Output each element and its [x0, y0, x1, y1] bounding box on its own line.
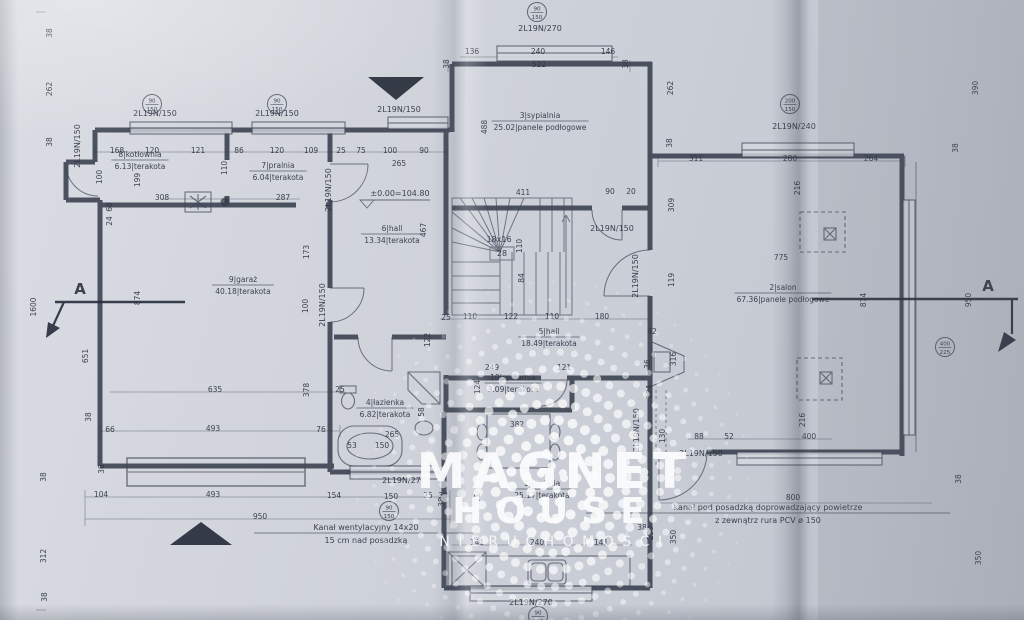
dimension: 100: [301, 299, 310, 314]
annotation: 15 cm nad posadzką: [325, 536, 408, 545]
dimension: 874: [133, 291, 142, 306]
window-door-label: 2L19N/270: [509, 598, 553, 607]
bubble-top-value: 90: [385, 506, 393, 512]
bubble-bottom-value: 150: [384, 514, 395, 520]
dimension: 287: [276, 193, 291, 202]
triangle-marker-bottom: [170, 522, 232, 545]
dimension: 100: [95, 170, 104, 185]
bubble-top-value: 400: [940, 342, 951, 348]
room-label: 2|salon: [769, 283, 796, 292]
dimension: 199: [133, 173, 142, 188]
window-door-label: 2L19N/150: [318, 283, 327, 327]
bubble-top-value: 200: [785, 99, 796, 105]
room-area-label: 40.18|terakota: [215, 287, 270, 296]
dimension: 90: [419, 146, 429, 155]
dimension: 350: [974, 551, 983, 566]
bubble-top-value: 90: [534, 611, 542, 617]
fixtures: [127, 192, 845, 588]
room-label: 4|łazienka: [366, 398, 404, 407]
blueprint-photo: 1681201218612010925751009026513624014652…: [0, 0, 1024, 620]
dimension: 38: [951, 143, 960, 153]
dimension: 316: [669, 352, 678, 367]
dimension: 265: [392, 159, 407, 168]
dimension: 53: [347, 441, 357, 450]
dimension: 38: [45, 137, 54, 147]
room-label: 7|pralnia: [261, 161, 294, 170]
dimension: 90: [605, 187, 615, 196]
dimension: 122: [423, 333, 432, 348]
window-door-label: 2L19N/150: [631, 254, 640, 298]
dimension: 240: [531, 47, 546, 56]
dimension: 635: [208, 385, 223, 394]
room-area-label: 6.13|terakota: [115, 162, 166, 171]
dimension: 488: [480, 120, 489, 135]
dimension: 262: [45, 82, 54, 97]
room-area-label: 18.49|terakota: [521, 339, 576, 348]
dimension: 84: [517, 273, 526, 283]
bubble-top-value: 90: [148, 99, 156, 105]
room-label: 9|garaż: [229, 275, 257, 284]
dimension: 76: [316, 425, 326, 434]
dimension: 874: [859, 293, 868, 308]
bubble-top-value: 90: [273, 99, 281, 105]
bubble-bottom-value: 150: [147, 107, 158, 113]
dimension: 38: [621, 59, 630, 69]
dimension: 400: [802, 432, 817, 441]
dimension: 75: [356, 146, 366, 155]
room-area-label: 67.36|panele podłogowe: [737, 295, 830, 304]
dimension: 950: [964, 293, 973, 308]
dimension: 38: [442, 59, 451, 69]
dimension: 390: [971, 81, 980, 96]
dimension: 38: [39, 472, 48, 482]
room-area-label: 6.04|terakota: [253, 173, 304, 182]
dimension: 124: [473, 380, 482, 395]
shower: [408, 372, 440, 404]
dimension: 280: [783, 154, 798, 163]
room-area-label: 13.34|terakota: [364, 236, 419, 245]
window-door-label: 2L19N/270: [382, 476, 426, 485]
dimension: 800: [786, 493, 801, 502]
dimension: 25: [441, 313, 451, 322]
dimension: 86: [234, 146, 244, 155]
dimension: 121: [191, 146, 206, 155]
dimension: 109: [304, 146, 319, 155]
chimney: [221, 198, 230, 207]
bubble-bottom-value: 225: [940, 350, 951, 356]
dimension: 154: [327, 491, 342, 500]
level-marker: [360, 200, 430, 208]
stair-tread-label: 28: [497, 249, 507, 258]
triangle-marker-top: [368, 77, 424, 100]
dimension: 308: [155, 193, 170, 202]
dimension: 100: [383, 146, 398, 155]
dimension: 522: [532, 60, 547, 69]
dimension: 60: [105, 202, 114, 212]
dimension: 775: [774, 253, 789, 262]
window-door-label: 2L19N/150: [73, 124, 82, 168]
dimension: 38: [954, 474, 963, 484]
window-door-label: 2L19N/150: [679, 449, 723, 458]
dimension: 378: [302, 383, 311, 398]
dimension: 52: [724, 432, 734, 441]
dimension: 104: [94, 490, 109, 499]
dimension: 180: [595, 312, 610, 321]
bubble-bottom-value: 150: [532, 15, 543, 21]
bubble-bottom-value: 150: [785, 107, 796, 113]
dimension: 122: [504, 312, 519, 321]
floor-plan: 1681201218612010925751009026513624014652…: [0, 0, 1024, 620]
dimension: 38: [84, 412, 93, 422]
dimension: 110: [220, 161, 229, 176]
section-marker-label: A: [982, 277, 994, 295]
dimension: 88: [694, 432, 704, 441]
dimension: 110: [515, 239, 524, 254]
annotation: z zewnątrz rura PCV ø 150: [715, 516, 821, 525]
dimension: 493: [206, 424, 221, 433]
dimension: 411: [516, 188, 531, 197]
dimension: 311: [689, 154, 704, 163]
window-door-label: 2L19N/240: [772, 122, 816, 131]
dimension: 36: [643, 359, 652, 369]
dimension: 66: [105, 425, 115, 434]
annotation: kanał pod posadzką doprowadzający powiet…: [674, 503, 863, 512]
dimension: 146: [601, 47, 616, 56]
dimension: 1600: [29, 297, 38, 316]
window-door-label: 2L19N/150: [377, 105, 421, 114]
staircase: [452, 198, 572, 315]
room-label: 8|kotłownia: [118, 150, 161, 159]
dimension: 58: [417, 407, 426, 417]
dimension: 119: [667, 273, 676, 288]
chair: [550, 444, 560, 460]
bubble-top-value: 90: [533, 7, 541, 13]
window-door-label: 2L19N/150: [324, 168, 333, 212]
stair-count-label: 18x16: [486, 235, 511, 244]
dimension: 136: [465, 47, 480, 56]
dimension: 173: [302, 245, 311, 260]
dimension: 25: [335, 385, 345, 394]
dimension: 262: [666, 81, 675, 96]
room-label: 6|hall: [382, 224, 403, 233]
dimension: 38: [97, 464, 106, 474]
dimension: 950: [253, 512, 268, 521]
bubble-bottom-value: 150: [272, 107, 283, 113]
level-annotation: ±0.00=104.80: [370, 189, 429, 198]
dimension: 38: [665, 138, 674, 148]
window-door-label: 2L19N/270: [518, 24, 562, 33]
dimension: 312: [39, 549, 48, 564]
dimension: 493: [206, 490, 221, 499]
dimension: 350: [669, 530, 678, 545]
fireplace: [652, 342, 684, 386]
dimension: 25: [336, 146, 346, 155]
room-label: 3|sypialnia: [520, 111, 561, 120]
dimension: 120: [270, 146, 285, 155]
dimension: 20: [626, 187, 636, 196]
dimension: 38: [40, 592, 49, 602]
dimension: 651: [81, 349, 90, 364]
dimension: 216: [793, 181, 802, 196]
dimension: 467: [419, 223, 428, 238]
window-door-label: 2L19N/150: [590, 224, 634, 233]
dimension: 216: [798, 413, 807, 428]
section-marker-label: A: [74, 280, 86, 298]
dimension: 150: [384, 492, 399, 501]
plan-labels: 1681201218612010925751009026513624014652…: [29, 3, 994, 620]
room-area-label: 25.02|panele podłogowe: [494, 123, 587, 132]
dimension: 309: [667, 198, 676, 213]
dimension: 38: [45, 28, 54, 38]
dimension: 24: [105, 216, 114, 226]
dimension: 264: [864, 154, 879, 163]
